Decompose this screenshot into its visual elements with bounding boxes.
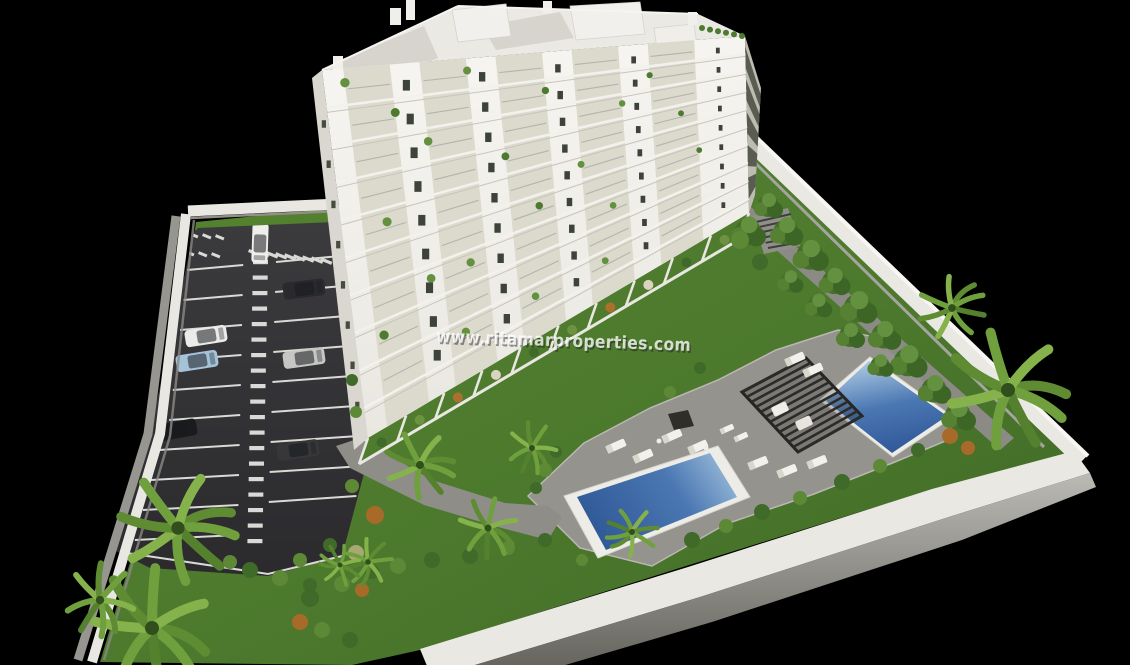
window — [633, 80, 638, 87]
median-bar — [251, 353, 266, 357]
garden-hedge — [453, 392, 463, 402]
window — [569, 225, 575, 233]
window — [641, 196, 646, 203]
penthouse — [452, 4, 511, 42]
window — [718, 106, 722, 112]
balcony-plant — [542, 87, 549, 94]
balcony-plant — [610, 202, 617, 209]
window — [642, 219, 647, 226]
window — [571, 251, 577, 259]
bush — [538, 533, 552, 547]
window — [501, 284, 507, 293]
balcony-plant — [391, 108, 400, 117]
window — [721, 183, 725, 189]
white-van — [251, 223, 269, 263]
bush — [272, 570, 288, 586]
balcony-plant — [340, 78, 349, 87]
bush — [942, 428, 958, 444]
bush — [292, 614, 308, 630]
median-bar — [247, 539, 262, 543]
median-bar — [248, 508, 263, 512]
window — [346, 321, 350, 329]
penthouse — [570, 2, 645, 40]
roof-stack — [543, 1, 552, 13]
bush — [342, 632, 358, 648]
window — [504, 314, 510, 323]
property-render: www.ritamarproperties.com www.ritamarpro… — [0, 0, 1130, 665]
window — [488, 163, 494, 172]
garden-hedge — [415, 415, 425, 425]
roof-plant — [707, 27, 713, 33]
window — [341, 281, 345, 289]
render-viewport: www.ritamarproperties.com www.ritamarpro… — [0, 0, 1130, 665]
garden-hedge — [377, 437, 387, 447]
median-bar — [249, 446, 264, 450]
roof-plant — [715, 28, 721, 34]
bush — [350, 406, 362, 418]
roof-stack — [406, 0, 415, 20]
window — [644, 242, 649, 249]
window — [430, 316, 437, 327]
median-bar — [250, 400, 265, 404]
roof-plant — [731, 31, 737, 37]
median-bar — [253, 276, 268, 280]
bush — [530, 482, 542, 494]
median-bar — [252, 322, 267, 326]
bush — [731, 231, 749, 249]
balcony-plant — [424, 137, 433, 146]
median-bar — [248, 493, 263, 497]
window — [350, 362, 354, 370]
bush — [911, 443, 925, 457]
window — [562, 144, 568, 152]
window — [422, 249, 429, 260]
window — [498, 254, 504, 263]
window — [721, 202, 725, 208]
window — [426, 282, 433, 293]
window — [485, 133, 491, 142]
window — [557, 91, 563, 99]
bush — [293, 553, 307, 567]
garden-hedge — [605, 302, 615, 312]
window — [482, 102, 488, 111]
roof-plant — [699, 25, 705, 31]
window — [717, 86, 721, 92]
roof-plant — [739, 33, 745, 39]
balcony-plant — [463, 67, 471, 75]
window — [336, 241, 340, 249]
balcony-plant — [602, 257, 609, 264]
median-bar — [248, 524, 263, 528]
roof-stack — [390, 8, 401, 25]
bush — [754, 504, 770, 520]
balcony-plant — [467, 258, 475, 266]
median-bar — [250, 415, 265, 419]
window — [639, 173, 644, 180]
window — [560, 118, 566, 126]
balcony-plant — [678, 110, 684, 116]
window — [322, 120, 326, 128]
window — [636, 126, 641, 133]
bush — [873, 459, 887, 473]
median-bar — [252, 307, 267, 311]
side-table — [704, 446, 709, 451]
window — [719, 144, 723, 150]
bush — [345, 479, 359, 493]
bush — [303, 578, 317, 592]
bush — [664, 386, 676, 398]
median-bar — [251, 384, 266, 388]
median-bar — [249, 477, 264, 481]
median-bar — [249, 462, 264, 466]
balcony-plant — [383, 217, 392, 226]
bush — [576, 554, 588, 566]
bush — [793, 491, 807, 505]
window — [720, 164, 724, 170]
window — [418, 215, 425, 226]
window — [631, 56, 636, 63]
window — [555, 64, 561, 72]
bush — [694, 362, 706, 374]
median-bar — [252, 291, 267, 295]
window — [567, 198, 573, 206]
window — [407, 114, 414, 125]
window — [434, 350, 441, 361]
garden-hedge — [491, 370, 501, 380]
balcony-plant — [619, 100, 626, 107]
window — [331, 201, 335, 209]
window — [491, 193, 497, 202]
bush — [346, 374, 358, 386]
balcony-plant — [647, 72, 653, 78]
window — [634, 103, 639, 110]
bush — [684, 532, 700, 548]
window — [719, 125, 723, 131]
garden-hedge — [720, 235, 730, 245]
window — [637, 149, 642, 156]
bush — [834, 474, 850, 490]
window — [564, 171, 570, 179]
bush — [424, 552, 440, 568]
window — [403, 80, 410, 91]
median-bar — [251, 369, 266, 373]
median-bar — [251, 338, 266, 342]
balcony-plant — [379, 330, 388, 339]
window — [479, 72, 485, 81]
side-table — [657, 439, 662, 444]
bush — [752, 254, 768, 270]
bush — [366, 506, 384, 524]
balcony-plant — [696, 147, 702, 153]
bush — [314, 622, 330, 638]
window — [574, 278, 580, 286]
balcony-plant — [536, 202, 543, 209]
garden-hedge — [643, 280, 653, 290]
window — [717, 67, 721, 73]
bush — [961, 441, 975, 455]
bush — [223, 555, 237, 569]
window — [494, 223, 500, 232]
window — [411, 147, 418, 158]
balcony-plant — [427, 274, 436, 283]
window — [716, 48, 720, 54]
balcony-plant — [578, 161, 585, 168]
median-bar — [250, 431, 265, 435]
balcony-plant — [532, 292, 540, 300]
balcony-plant — [501, 152, 509, 160]
window — [327, 160, 331, 168]
bush — [719, 519, 733, 533]
roof-plant — [723, 30, 729, 36]
garden-hedge — [681, 257, 691, 267]
window — [414, 181, 421, 192]
north-wall — [188, 204, 338, 211]
bush — [242, 562, 258, 578]
